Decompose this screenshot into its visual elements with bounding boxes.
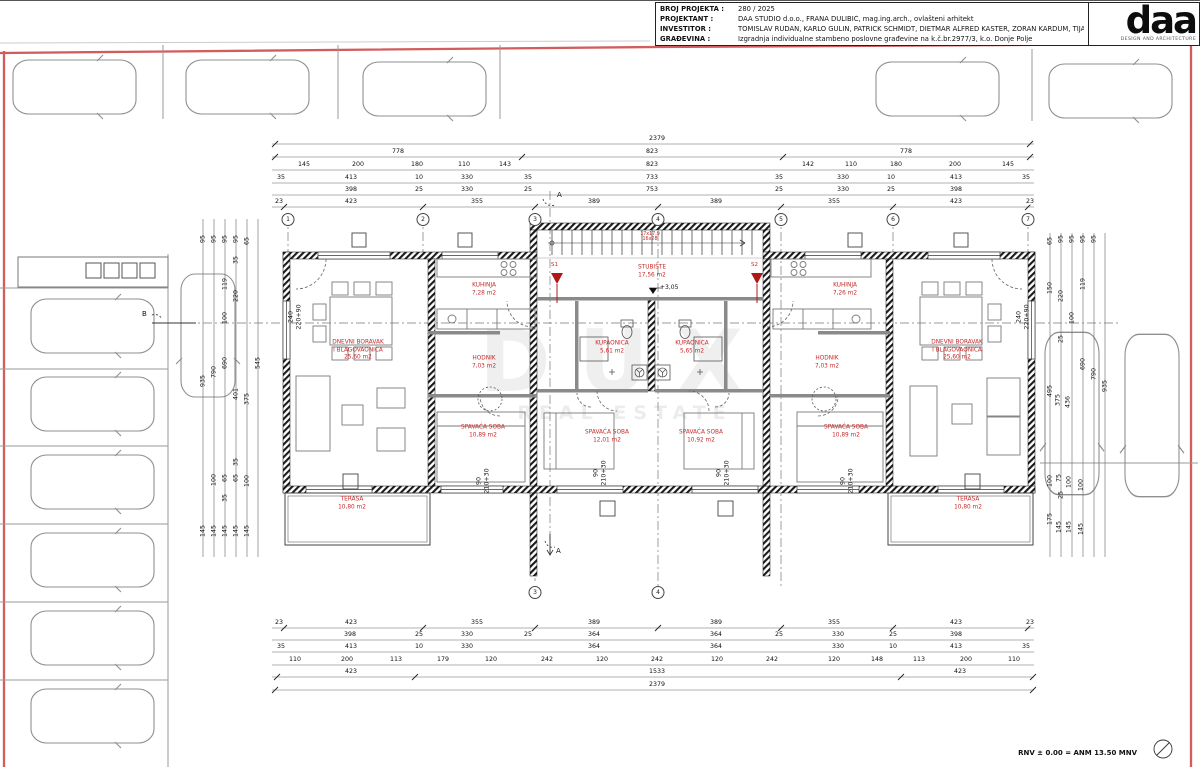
dim-label: 423 bbox=[345, 668, 357, 675]
dim-label: 220+90 bbox=[296, 304, 303, 329]
dim-label: 423 bbox=[345, 198, 357, 205]
dim-label: 200 bbox=[960, 656, 972, 663]
car-icon bbox=[31, 684, 154, 748]
level-marker-label: +3,05 bbox=[660, 284, 678, 291]
dim-label: 398 bbox=[950, 631, 962, 638]
dim-label: 935 bbox=[1102, 380, 1109, 392]
dim-label: 10 bbox=[887, 174, 895, 181]
dim-label: 1533 bbox=[649, 668, 665, 675]
plan-linework bbox=[0, 1, 1200, 767]
dim-label: 35 bbox=[775, 174, 783, 181]
room-name-line1: HODNIK bbox=[472, 355, 496, 363]
dim-label: 330 bbox=[461, 643, 473, 650]
dim-label: 790 bbox=[1091, 368, 1098, 380]
grid-bubble: 5 bbox=[775, 213, 788, 226]
room-name-line1: SPAVAĆA SOBA bbox=[585, 429, 629, 437]
room-area: 12,01 m2 bbox=[585, 437, 629, 445]
room-area: 10,80 m2 bbox=[954, 504, 982, 512]
dim-label: 95 bbox=[211, 235, 218, 243]
dim-label: 145 bbox=[1056, 521, 1063, 533]
room-name-line1: HODNIK bbox=[815, 355, 839, 363]
dim-label: 2379 bbox=[649, 135, 665, 142]
dim-label: 25 bbox=[415, 631, 423, 638]
dim-label: 364 bbox=[710, 643, 722, 650]
car-icon bbox=[31, 528, 154, 592]
room-area: 7,03 m2 bbox=[815, 363, 839, 371]
dim-label: 142 bbox=[802, 161, 814, 168]
dim-label: 200 bbox=[341, 656, 353, 663]
dim-label: 65 bbox=[233, 474, 240, 482]
dim-label: 495 bbox=[1047, 385, 1054, 397]
dim-label: 25 bbox=[1058, 335, 1065, 343]
dim-label: 413 bbox=[345, 174, 357, 181]
dim-label: 25 bbox=[415, 186, 423, 193]
room-name-line1: STUBIŠTE bbox=[638, 264, 666, 272]
dim-label: 778 bbox=[900, 148, 912, 155]
dim-label: 145 bbox=[298, 161, 310, 168]
room-area: 25,60 m2 bbox=[332, 355, 384, 363]
dim-label: 143 bbox=[499, 161, 511, 168]
dim-label: 200 bbox=[352, 161, 364, 168]
dim-label: 145 bbox=[1066, 521, 1073, 533]
dim-label: 413 bbox=[950, 174, 962, 181]
dim-label: 25 bbox=[524, 631, 532, 638]
dim-label: 25 bbox=[889, 631, 897, 638]
dim-label: 375 bbox=[1055, 394, 1062, 406]
room-area: 7,03 m2 bbox=[472, 363, 496, 371]
room-name-line1: SPAVAĆA SOBA bbox=[824, 424, 868, 432]
dim-label: 413 bbox=[950, 643, 962, 650]
dim-label: 119 bbox=[222, 278, 229, 290]
dim-label: 401 bbox=[233, 388, 240, 400]
dim-label: 100 bbox=[222, 312, 229, 324]
dim-label: 10 bbox=[889, 643, 897, 650]
dim-label: 95 bbox=[200, 235, 207, 243]
dim-label: 375 bbox=[244, 393, 251, 405]
room-label: KUHINJA 7,28 m2 bbox=[472, 282, 496, 297]
dim-label: 389 bbox=[588, 619, 600, 626]
title-block-row: INVESTITOR : TOMISLAV RUDAN, KARLO GULIN… bbox=[660, 25, 1084, 35]
room-label: KUPAONICA 5,61 m2 bbox=[595, 340, 629, 355]
room-name-line1: KUPAONICA bbox=[595, 340, 629, 348]
dim-label: 95 bbox=[1069, 235, 1076, 243]
dim-label: 25 bbox=[524, 186, 532, 193]
car-icon bbox=[13, 55, 136, 119]
dim-label: 935 bbox=[200, 375, 207, 387]
room-area: 10,89 m2 bbox=[461, 432, 505, 440]
dim-label: 220 bbox=[1058, 290, 1065, 302]
dim-label: 355 bbox=[471, 198, 483, 205]
dim-label: 145 bbox=[1078, 523, 1085, 535]
dim-label: 90 bbox=[476, 477, 483, 485]
room-name-line1: TERASA bbox=[338, 496, 366, 504]
dim-label: 423 bbox=[345, 619, 357, 626]
dim-label: 175 bbox=[1047, 513, 1054, 525]
dim-label: 423 bbox=[950, 619, 962, 626]
dim-label: 65 bbox=[1047, 237, 1054, 245]
dim-label: 330 bbox=[461, 174, 473, 181]
dim-label: 753 bbox=[646, 186, 658, 193]
car-icon bbox=[876, 57, 999, 121]
dim-label: 23 bbox=[1026, 619, 1034, 626]
dim-label: 330 bbox=[461, 631, 473, 638]
grid-bubble: 1 bbox=[282, 213, 295, 226]
dim-label: 35 bbox=[277, 174, 285, 181]
grid-bubble: 2 bbox=[417, 213, 430, 226]
dim-label: 355 bbox=[471, 619, 483, 626]
room-name-line2: I BLAGOVAONICA bbox=[332, 347, 384, 355]
room-name-line1: SPAVAĆA SOBA bbox=[679, 429, 723, 437]
title-block-row-value: 280 / 2025 bbox=[738, 5, 775, 15]
title-block-row-label: PROJEKTANT : bbox=[660, 15, 738, 25]
room-area: 5,65 m2 bbox=[675, 348, 709, 356]
room-label: HODNIK 7,03 m2 bbox=[472, 355, 496, 370]
dim-label: 90 bbox=[593, 469, 600, 477]
title-block-row-label: INVESTITOR : bbox=[660, 25, 738, 35]
dim-label: 95 bbox=[222, 235, 229, 243]
dim-label: 210+30 bbox=[484, 468, 491, 493]
dim-label: 95 bbox=[1080, 235, 1087, 243]
dim-label: 23 bbox=[275, 198, 283, 205]
title-block-row: GRAĐEVINA : Izgradnja individualne stamb… bbox=[660, 35, 1084, 45]
dim-label: 119 bbox=[1080, 278, 1087, 290]
dim-label: 148 bbox=[871, 656, 883, 663]
dim-label: 436 bbox=[1065, 396, 1072, 408]
dim-label: 398 bbox=[344, 631, 356, 638]
dim-label: 200 bbox=[949, 161, 961, 168]
dim-label: 35 bbox=[277, 643, 285, 650]
dim-label: 389 bbox=[710, 198, 722, 205]
dim-label: 355 bbox=[828, 619, 840, 626]
room-area: 10,80 m2 bbox=[338, 504, 366, 512]
dim-label: 35 bbox=[1022, 643, 1030, 650]
dim-label: 145 bbox=[233, 525, 240, 537]
room-area: 7,28 m2 bbox=[472, 290, 496, 298]
floor-plan-sheet: DUX REAL ESTATE bbox=[0, 0, 1200, 767]
dim-label: 100 bbox=[1066, 476, 1073, 488]
room-area: 10,89 m2 bbox=[824, 432, 868, 440]
dim-label: 330 bbox=[832, 643, 844, 650]
dim-label: 10 bbox=[415, 643, 423, 650]
dim-label: 210+30 bbox=[601, 460, 608, 485]
dim-label: 65 bbox=[222, 474, 229, 482]
car-icon bbox=[31, 450, 154, 514]
section-b-label: B bbox=[142, 310, 147, 318]
dim-label: 113 bbox=[913, 656, 925, 663]
room-area: 25,60 m2 bbox=[931, 355, 983, 363]
dim-label: 823 bbox=[646, 161, 658, 168]
title-block-row-label: GRAĐEVINA : bbox=[660, 35, 738, 45]
room-label: SPAVAĆA SOBA 10,89 m2 bbox=[461, 424, 505, 439]
dim-label: 778 bbox=[392, 148, 404, 155]
dim-label: 364 bbox=[588, 631, 600, 638]
room-label: STUBIŠTE 17,56 m2 bbox=[638, 264, 666, 279]
dim-label: 35 bbox=[524, 174, 532, 181]
stair-note: 17x17,9 16x28 bbox=[640, 232, 660, 243]
dim-label: 389 bbox=[710, 619, 722, 626]
room-name-line1: KUHINJA bbox=[472, 282, 496, 290]
dim-label: 120 bbox=[596, 656, 608, 663]
dim-label: 423 bbox=[954, 668, 966, 675]
dim-label: 145 bbox=[222, 525, 229, 537]
dim-label: 100 bbox=[1069, 312, 1076, 324]
dim-label: 100 bbox=[211, 474, 218, 486]
dim-label: 242 bbox=[541, 656, 553, 663]
dim-label: 75 bbox=[1056, 474, 1063, 482]
dim-label: 210+30 bbox=[848, 468, 855, 493]
dim-label: 210+30 bbox=[724, 460, 731, 485]
room-name-line1: DNEVNI BORAVAK bbox=[931, 340, 983, 348]
section-s2-label: S2 bbox=[751, 262, 758, 268]
dim-label: 113 bbox=[390, 656, 402, 663]
dim-label: 25 bbox=[775, 186, 783, 193]
dim-label: 389 bbox=[588, 198, 600, 205]
dim-label: 242 bbox=[766, 656, 778, 663]
dim-label: 242 bbox=[651, 656, 663, 663]
dim-label: 355 bbox=[828, 198, 840, 205]
room-name-line1: KUPAONICA bbox=[675, 340, 709, 348]
room-name-line1: DNEVNI BORAVAK bbox=[332, 340, 384, 348]
dim-label: 2379 bbox=[649, 681, 665, 688]
car-icon bbox=[31, 294, 154, 358]
logo-text: daa bbox=[1092, 3, 1196, 39]
room-area: 5,61 m2 bbox=[595, 348, 629, 356]
dim-label: 10 bbox=[415, 174, 423, 181]
room-label: TERASA 10,80 m2 bbox=[338, 496, 366, 511]
dim-label: 145 bbox=[244, 525, 251, 537]
dim-label: 110 bbox=[458, 161, 470, 168]
dim-label: 110 bbox=[289, 656, 301, 663]
logo: daa DESIGN AND ARCHITECTURE bbox=[1089, 2, 1200, 46]
room-area: 7,26 m2 bbox=[833, 290, 857, 298]
dim-label: 220 bbox=[233, 290, 240, 302]
dim-label: 180 bbox=[411, 161, 423, 168]
dim-label: 423 bbox=[950, 198, 962, 205]
room-label: SPAVAĆA SOBA 10,89 m2 bbox=[824, 424, 868, 439]
north-symbol-icon bbox=[1154, 740, 1172, 758]
dim-label: 120 bbox=[711, 656, 723, 663]
dim-label: 120 bbox=[828, 656, 840, 663]
dim-label: 330 bbox=[837, 186, 849, 193]
stair-note-line2: 16x28 bbox=[640, 237, 660, 242]
room-label: TERASA 10,80 m2 bbox=[954, 496, 982, 511]
title-block-rows: BROJ PROJEKTA : 280 / 2025 PROJEKTANT : … bbox=[660, 5, 1084, 44]
dim-label: 95 bbox=[1058, 235, 1065, 243]
dim-label: 35 bbox=[1022, 174, 1030, 181]
grid-bubble: 3 bbox=[529, 213, 542, 226]
dim-label: 110 bbox=[845, 161, 857, 168]
room-name-line1: SPAVAĆA SOBA bbox=[461, 424, 505, 432]
dim-label: 398 bbox=[345, 186, 357, 193]
car-icon bbox=[186, 55, 309, 119]
dim-label: 90 bbox=[716, 469, 723, 477]
grid-bubble: 4 bbox=[652, 213, 665, 226]
dim-label: 100 bbox=[1047, 475, 1054, 487]
title-block-row-value: TOMISLAV RUDAN, KARLO GULIN, PATRICK SCH… bbox=[738, 25, 1084, 35]
room-label: SPAVAĆA SOBA 12,01 m2 bbox=[585, 429, 629, 444]
dim-label: 100 bbox=[1078, 479, 1085, 491]
terraces bbox=[285, 493, 1033, 545]
dim-label: 25 bbox=[1058, 491, 1065, 499]
dim-label: 25 bbox=[887, 186, 895, 193]
title-block-row-value: Izgradnja individualne stambeno poslovne… bbox=[738, 35, 1032, 45]
dim-label: 240 bbox=[1016, 311, 1023, 323]
room-label: SPAVAĆA SOBA 10,92 m2 bbox=[679, 429, 723, 444]
dim-label: 330 bbox=[461, 186, 473, 193]
logo-subtext: DESIGN AND ARCHITECTURE bbox=[1092, 37, 1196, 42]
dim-label: 145 bbox=[200, 525, 207, 537]
dim-label: 690 bbox=[1080, 358, 1087, 370]
dim-label: 100 bbox=[244, 475, 251, 487]
room-label: DNEVNI BORAVAK I BLAGOVAONICA 25,60 m2 bbox=[931, 340, 983, 363]
dim-label: 35 bbox=[233, 458, 240, 466]
dim-label: 790 bbox=[211, 366, 218, 378]
room-label: DNEVNI BORAVAK I BLAGOVAONICA 25,60 m2 bbox=[332, 340, 384, 363]
car-icon bbox=[363, 57, 486, 121]
dim-label: 25 bbox=[775, 631, 783, 638]
dim-label: 95 bbox=[1091, 235, 1098, 243]
section-a-top-label: A bbox=[557, 191, 562, 199]
car-icon bbox=[176, 274, 240, 397]
room-label: HODNIK 7,03 m2 bbox=[815, 355, 839, 370]
dim-label: 364 bbox=[710, 631, 722, 638]
dim-label: 398 bbox=[950, 186, 962, 193]
dim-label: 364 bbox=[588, 643, 600, 650]
section-a-bottom-label: A bbox=[556, 547, 561, 555]
dim-label: 330 bbox=[837, 174, 849, 181]
title-block-row: BROJ PROJEKTA : 280 / 2025 bbox=[660, 5, 1084, 15]
car-icon bbox=[31, 372, 154, 436]
dim-label: 150 bbox=[1047, 282, 1054, 294]
grid-bubble: 4 bbox=[652, 586, 665, 599]
room-area: 10,92 m2 bbox=[679, 437, 723, 445]
room-name-line1: TERASA bbox=[954, 496, 982, 504]
elevation-note: RNV ± 0.00 = ANM 13.50 MNV bbox=[1018, 749, 1137, 757]
dim-label: 35 bbox=[222, 494, 229, 502]
dim-label: 65 bbox=[244, 237, 251, 245]
room-label: KUHINJA 7,26 m2 bbox=[833, 282, 857, 297]
dim-label: 545 bbox=[255, 357, 262, 369]
dim-label: 35 bbox=[233, 256, 240, 264]
dim-label: 23 bbox=[275, 619, 283, 626]
grid-bubble: 3 bbox=[529, 586, 542, 599]
dim-label: 145 bbox=[211, 525, 218, 537]
room-name-line2: I BLAGOVAONICA bbox=[931, 347, 983, 355]
room-name-line1: KUHINJA bbox=[833, 282, 857, 290]
dim-label: 90 bbox=[840, 477, 847, 485]
dim-label: 690 bbox=[222, 357, 229, 369]
dim-label: 220+90 bbox=[1024, 304, 1031, 329]
grid-bubble: 7 bbox=[1022, 213, 1035, 226]
dim-label: 330 bbox=[832, 631, 844, 638]
dim-label: 120 bbox=[485, 656, 497, 663]
dim-label: 179 bbox=[437, 656, 449, 663]
dim-label: 145 bbox=[1002, 161, 1014, 168]
dim-label: 23 bbox=[1026, 198, 1034, 205]
title-block: BROJ PROJEKTA : 280 / 2025 PROJEKTANT : … bbox=[655, 2, 1089, 46]
dim-label: 95 bbox=[233, 235, 240, 243]
dim-label: 240 bbox=[288, 311, 295, 323]
dim-label: 823 bbox=[646, 148, 658, 155]
car-icon bbox=[1120, 334, 1184, 496]
car-icon bbox=[1049, 59, 1172, 123]
section-s1-label: S1 bbox=[551, 262, 558, 268]
dim-label: 180 bbox=[890, 161, 902, 168]
grid-bubble: 6 bbox=[887, 213, 900, 226]
title-block-row-value: DAA STUDIO d.o.o., FRANA DULIBIĆ, mag.in… bbox=[738, 15, 974, 25]
dim-label: 110 bbox=[1008, 656, 1020, 663]
title-block-row-label: BROJ PROJEKTA : bbox=[660, 5, 738, 15]
title-block-row: PROJEKTANT : DAA STUDIO d.o.o., FRANA DU… bbox=[660, 15, 1084, 25]
grid-axis-lines bbox=[152, 191, 1118, 586]
room-area: 17,56 m2 bbox=[638, 272, 666, 280]
car-icon bbox=[31, 606, 154, 670]
room-label: KUPAONICA 5,65 m2 bbox=[675, 340, 709, 355]
dim-label: 413 bbox=[345, 643, 357, 650]
dim-label: 733 bbox=[646, 174, 658, 181]
